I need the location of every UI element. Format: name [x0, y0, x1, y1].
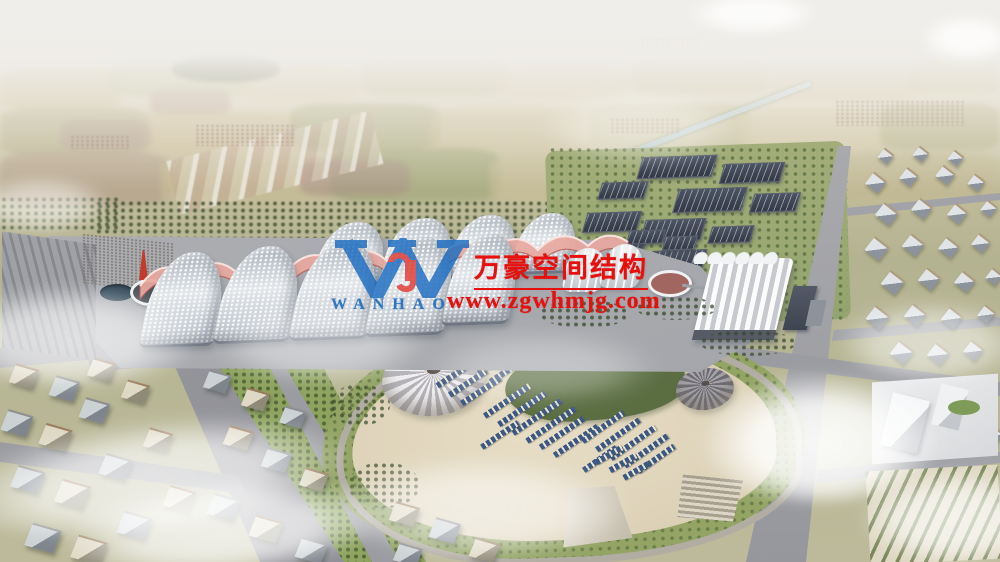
aerial-render-scene: WANHAO 万豪空间结构 www.zgwhmjg.com	[0, 0, 1000, 562]
watermark-website: www.zgwhmjg.com	[447, 288, 661, 315]
city-building	[121, 379, 150, 403]
cloud	[540, 90, 740, 160]
city-building	[79, 397, 111, 423]
cloud	[330, 455, 630, 555]
oval-lawn	[948, 400, 980, 415]
grove	[330, 384, 390, 426]
watermark-company-name: 万豪空间结构	[474, 246, 648, 290]
city-building	[0, 409, 33, 437]
city-building	[203, 369, 232, 393]
grove	[700, 330, 796, 356]
cloud	[420, 330, 660, 400]
city-building	[241, 387, 270, 411]
company-name-text: 万豪空间结构	[474, 253, 648, 284]
